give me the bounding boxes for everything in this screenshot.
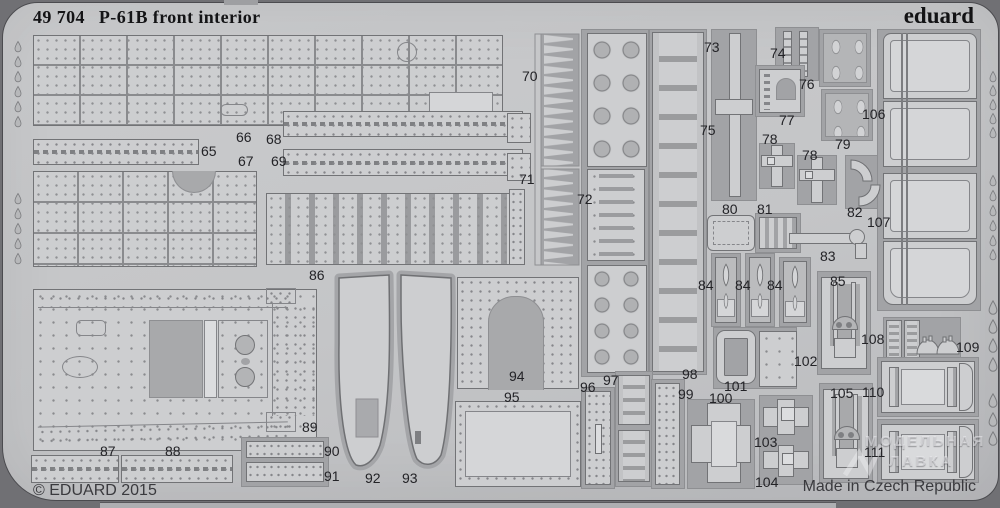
part-number-74: 74 xyxy=(770,46,786,60)
part-number-70: 70 xyxy=(522,69,538,83)
part-number-105: 105 xyxy=(830,386,853,400)
part-number-79: 79 xyxy=(835,137,851,151)
part-number-72: 72 xyxy=(577,192,593,206)
part-number-98: 98 xyxy=(682,367,698,381)
copyright-text: © EDUARD 2015 xyxy=(33,482,157,500)
part-number-80: 80 xyxy=(722,202,738,216)
part-number-66: 66 xyxy=(236,130,252,144)
part-number-86: 86 xyxy=(309,268,325,282)
part-number-103: 103 xyxy=(754,435,777,449)
part-number-99: 99 xyxy=(678,387,694,401)
part-number-85: 85 xyxy=(830,274,846,288)
part-number-92: 92 xyxy=(365,471,381,485)
part-number-89: 89 xyxy=(302,420,318,434)
part-number-67: 67 xyxy=(238,154,254,168)
part-number-71: 71 xyxy=(519,172,535,186)
part-number-91: 91 xyxy=(324,469,340,483)
part-number-88: 88 xyxy=(165,444,181,458)
part-number-84: 84 xyxy=(698,278,714,292)
part-number-83: 83 xyxy=(820,249,836,263)
part-number-95: 95 xyxy=(504,390,520,404)
part-number-101: 101 xyxy=(724,379,747,393)
part-number-110: 110 xyxy=(862,385,884,399)
part-number-77: 77 xyxy=(779,113,795,127)
part-number-78: 78 xyxy=(802,148,818,162)
part-labels-layer: 6566676869707172737475767778787980818283… xyxy=(3,3,998,500)
part-number-81: 81 xyxy=(757,202,773,216)
sprue-tab-top xyxy=(224,0,258,5)
part-number-90: 90 xyxy=(324,444,340,458)
part-number-69: 69 xyxy=(271,154,287,168)
adjacent-sheet-edge xyxy=(100,502,836,508)
part-number-102: 102 xyxy=(794,354,817,368)
part-number-84: 84 xyxy=(767,278,783,292)
part-number-78: 78 xyxy=(762,132,778,146)
part-number-82: 82 xyxy=(847,205,863,219)
part-number-108: 108 xyxy=(861,332,884,346)
watermark-line1: МОДЕЛЬНАЯ xyxy=(865,433,986,450)
part-number-107: 107 xyxy=(867,215,890,229)
part-number-94: 94 xyxy=(509,369,525,383)
part-number-84: 84 xyxy=(735,278,751,292)
part-number-93: 93 xyxy=(402,471,418,485)
made-in-text: Made in Czech Republic xyxy=(803,478,976,496)
fret-plate: 49 704P-61B front interior eduard xyxy=(2,2,999,501)
watermark-line2: ЛАВКА xyxy=(889,453,954,470)
part-number-104: 104 xyxy=(755,475,778,489)
part-number-65: 65 xyxy=(201,144,217,158)
photo-etch-sheet-photo: 49 704P-61B front interior eduard xyxy=(0,0,1000,508)
part-number-106: 106 xyxy=(862,107,885,121)
part-number-73: 73 xyxy=(704,40,720,54)
part-number-75: 75 xyxy=(700,123,716,137)
part-number-76: 76 xyxy=(799,77,815,91)
part-number-97: 97 xyxy=(603,373,619,387)
part-number-68: 68 xyxy=(266,132,282,146)
part-number-87: 87 xyxy=(100,444,116,458)
part-number-96: 96 xyxy=(580,380,596,394)
part-number-109: 109 xyxy=(956,340,979,354)
